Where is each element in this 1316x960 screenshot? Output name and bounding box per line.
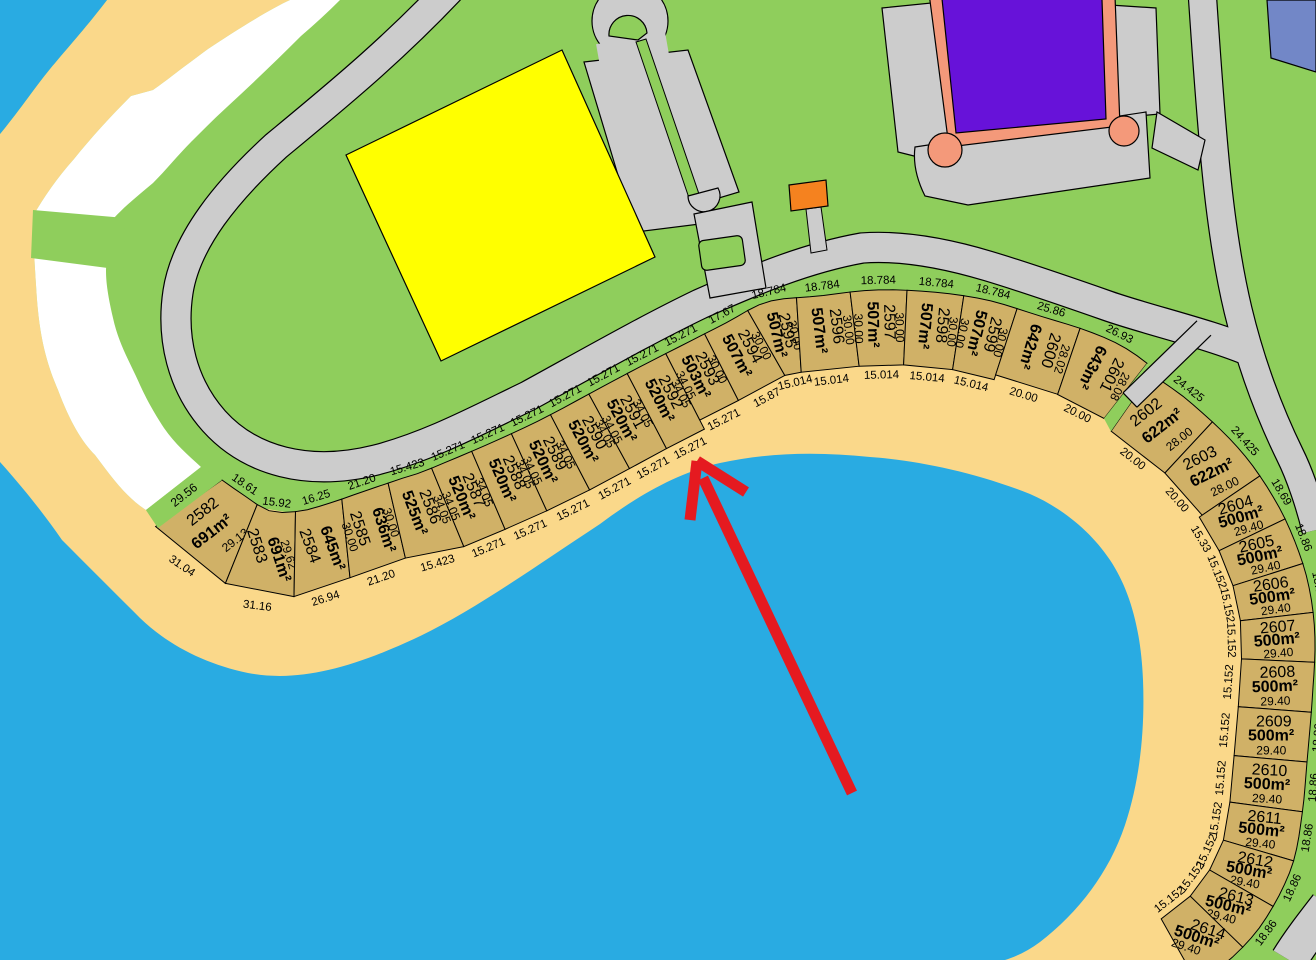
svg-text:15.152: 15.152 xyxy=(1224,622,1237,658)
svg-text:29.40: 29.40 xyxy=(1263,645,1294,662)
svg-text:30.00: 30.00 xyxy=(851,313,866,344)
svg-text:18.784: 18.784 xyxy=(861,275,897,288)
svg-text:29.40: 29.40 xyxy=(1260,694,1291,709)
svg-text:500m²: 500m² xyxy=(1248,728,1294,745)
svg-text:15.014: 15.014 xyxy=(864,369,900,382)
svg-text:18.86: 18.86 xyxy=(1307,773,1316,803)
svg-text:29.40: 29.40 xyxy=(1252,791,1283,807)
svg-text:15.152: 15.152 xyxy=(1222,664,1236,700)
svg-text:29.40: 29.40 xyxy=(1256,743,1286,757)
